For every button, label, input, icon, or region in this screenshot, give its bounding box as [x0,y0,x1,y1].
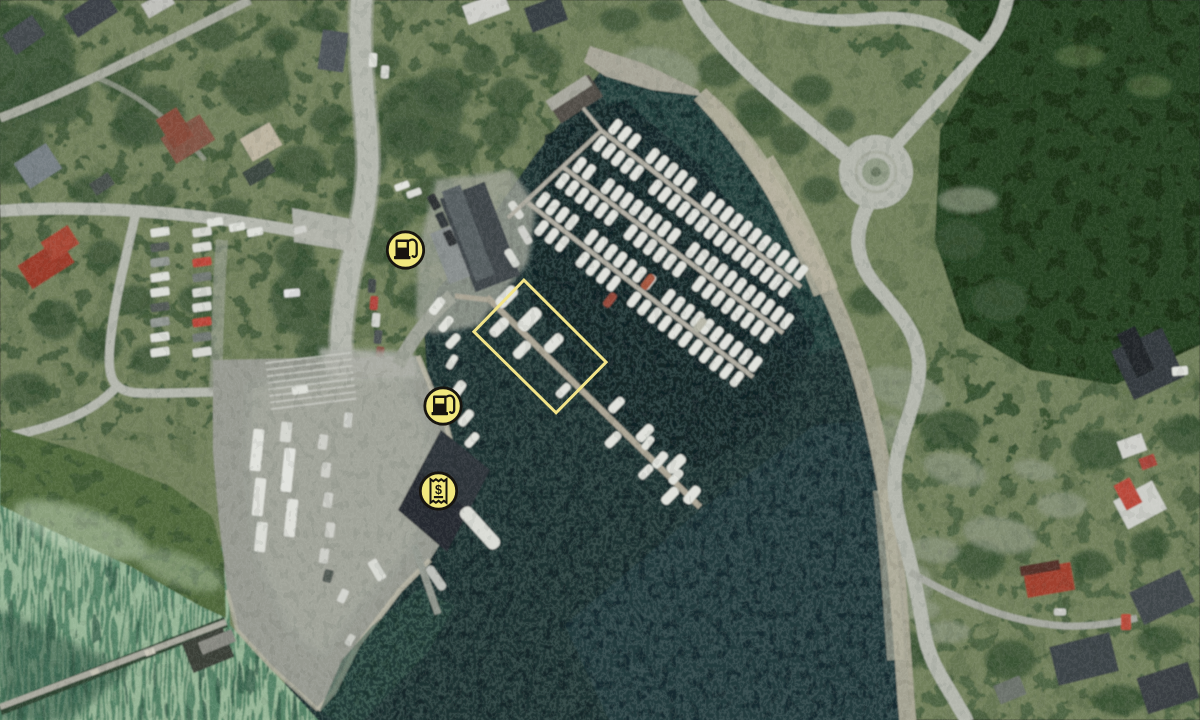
svg-text:$: $ [435,483,442,497]
